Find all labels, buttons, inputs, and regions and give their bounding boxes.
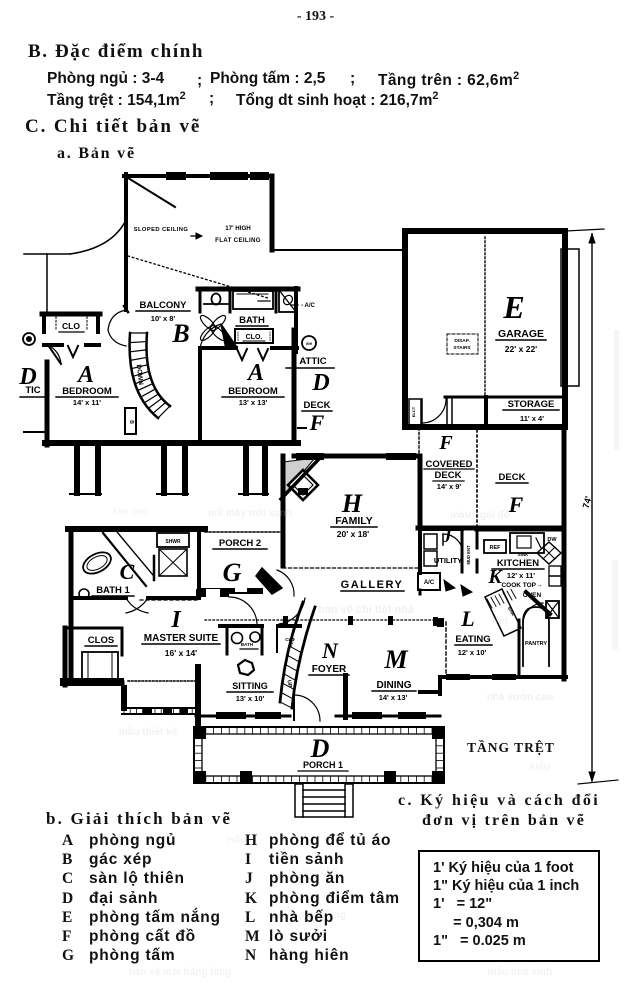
svg-text:14' x 9': 14' x 9' [437, 482, 462, 491]
svg-text:CLOS: CLOS [88, 635, 114, 646]
svg-text:PORCH 2: PORCH 2 [219, 538, 261, 549]
svg-text:FOYER: FOYER [312, 664, 347, 675]
svg-text:SLOPED CEILING: SLOPED CEILING [134, 227, 189, 233]
svg-text:D: D [311, 370, 329, 396]
svg-text:13' x 10': 13' x 10' [236, 694, 265, 703]
svg-text:20' x 18': 20' x 18' [337, 529, 369, 539]
svg-text:DECK: DECK [499, 472, 526, 483]
svg-text:I: I [170, 607, 182, 633]
svg-text:COOK TOP→: COOK TOP→ [501, 582, 542, 589]
svg-text:22' x 22': 22' x 22' [505, 344, 537, 354]
svg-text:DISAP.: DISAP. [454, 338, 469, 344]
svg-text:KITCHEN: KITCHEN [497, 558, 539, 569]
svg-text:BEDROOM: BEDROOM [228, 386, 278, 397]
svg-text:nhà vườn cao: nhà vườn cao [487, 692, 554, 703]
svg-text:SITTING: SITTING [232, 681, 268, 691]
svg-text:13' x 13': 13' x 13' [239, 398, 268, 407]
svg-text:B: B [128, 420, 134, 424]
svg-text:BATH 1: BATH 1 [96, 585, 130, 596]
svg-text:12' x 11': 12' x 11' [507, 571, 535, 580]
svg-text:EATING: EATING [455, 634, 490, 645]
svg-text:BALCONY: BALCONY [140, 300, 188, 311]
svg-text:- A/C: - A/C [301, 303, 315, 309]
svg-text:FAMILY: FAMILY [335, 515, 373, 527]
svg-text:MUD ENT: MUD ENT [466, 545, 471, 565]
svg-text:SHWR: SHWR [165, 539, 181, 545]
svg-text:14' x 11': 14' x 11' [73, 398, 101, 407]
svg-text:REF: REF [490, 545, 502, 551]
svg-text:FLAT CEILING: FLAT CEILING [215, 237, 261, 244]
svg-text:PANTRY: PANTRY [525, 641, 547, 647]
svg-text:A: A [246, 360, 264, 386]
svg-text:ELCT: ELCT [411, 406, 416, 417]
svg-text:khu vực: khu vực [112, 506, 147, 516]
svg-text:E: E [502, 289, 524, 325]
svg-text:STAIRS: STAIRS [453, 345, 471, 351]
svg-text:UTILITY: UTILITY [434, 556, 462, 565]
svg-text:W/H: W/H [306, 342, 313, 346]
svg-text:16' x 14': 16' x 14' [165, 648, 197, 658]
svg-text:bản vẽ chi tiết nhà: bản vẽ chi tiết nhà [318, 604, 415, 616]
svg-text:trệt: trệt [492, 616, 509, 627]
svg-text:BATH: BATH [239, 315, 265, 326]
svg-text:BATH: BATH [241, 642, 253, 647]
svg-text:11' x 4': 11' x 4' [520, 414, 544, 423]
svg-text:F: F [438, 432, 453, 454]
svg-text:GARAGE: GARAGE [498, 328, 544, 340]
svg-text:17' HIGH: 17' HIGH [225, 225, 251, 232]
svg-text:bản vẽ mặt bằng tầng: bản vẽ mặt bằng tầng [129, 965, 232, 978]
svg-text:kiểu: kiểu [530, 761, 550, 773]
svg-text:C: C [120, 559, 135, 584]
svg-text:B: B [171, 319, 189, 348]
svg-text:mẫu: mẫu [226, 833, 247, 846]
svg-text:BEDROOM: BEDROOM [62, 386, 112, 397]
svg-text:mẫu nhà xinh: mẫu nhà xinh [488, 965, 552, 978]
svg-text:H: H [341, 489, 363, 518]
svg-text:F: F [508, 492, 524, 517]
svg-text:G: G [223, 558, 242, 587]
svg-text:GALLERY: GALLERY [341, 579, 404, 591]
svg-text:PORCH 1: PORCH 1 [303, 760, 343, 770]
svg-text:CLO: CLO [62, 321, 80, 331]
svg-text:mẫu thiết kế: mẫu thiết kế [119, 725, 178, 738]
svg-text:J: J [442, 526, 453, 546]
svg-text:ATTIC: ATTIC [299, 356, 326, 367]
svg-text:núi mây trời xanh: núi mây trời xanh [208, 508, 292, 519]
svg-text:N: N [321, 638, 339, 663]
svg-text:màu ngói đỏ: màu ngói đỏ [450, 510, 509, 521]
svg-text:DECK: DECK [435, 470, 462, 481]
svg-text:CLO.: CLO. [246, 334, 263, 341]
svg-text:A/C: A/C [424, 580, 435, 586]
svg-text:A: A [76, 362, 94, 388]
svg-text:UP: UP [285, 680, 292, 689]
svg-text:TIC: TIC [25, 385, 40, 396]
svg-text:STORAGE: STORAGE [508, 399, 555, 410]
svg-text:M: M [383, 645, 408, 674]
svg-text:SINK: SINK [518, 552, 530, 557]
svg-text:L: L [460, 606, 474, 631]
svg-text:F: F [309, 410, 325, 435]
svg-text:D: D [310, 734, 330, 763]
svg-text:12' x 10': 12' x 10' [458, 648, 487, 657]
svg-text:DOWN: DOWN [135, 364, 144, 386]
svg-text:DINING: DINING [377, 680, 412, 691]
svg-text:MASTER SUITE: MASTER SUITE [144, 633, 219, 644]
svg-text:14' x 13': 14' x 13' [379, 693, 408, 702]
